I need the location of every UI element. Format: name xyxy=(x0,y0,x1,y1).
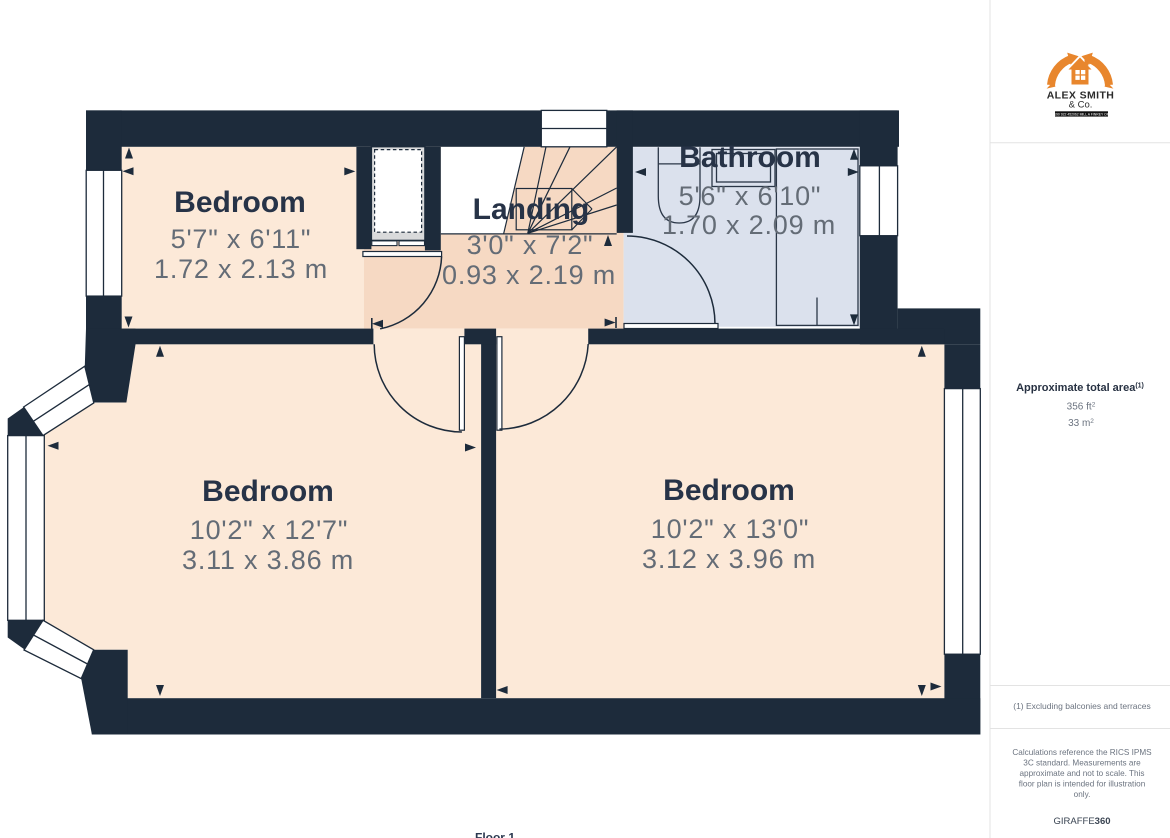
svg-text:3'0" x 7'2": 3'0" x 7'2" xyxy=(467,230,594,260)
svg-text:& Co.: & Co. xyxy=(1069,100,1093,111)
svg-text:floor plan is intended for ill: floor plan is intended for illustration xyxy=(1019,780,1146,789)
svg-text:Bedroom: Bedroom xyxy=(202,475,334,508)
svg-text:1.70 x 2.09 m: 1.70 x 2.09 m xyxy=(662,210,836,240)
svg-text:only.: only. xyxy=(1074,790,1091,799)
svg-text:5'6" x 6'10": 5'6" x 6'10" xyxy=(679,181,822,211)
svg-text:(1) Excluding balconies and te: (1) Excluding balconies and terraces xyxy=(1013,701,1151,711)
svg-text:10'2" x 12'7": 10'2" x 12'7" xyxy=(190,515,348,545)
svg-text:5'7" x 6'11": 5'7" x 6'11" xyxy=(171,224,312,254)
svg-text:10'2" x 13'0": 10'2" x 13'0" xyxy=(651,514,809,544)
svg-text:3.11 x 3.86 m: 3.11 x 3.86 m xyxy=(182,545,354,575)
svg-text:Approximate total area(1): Approximate total area(1) xyxy=(1016,382,1144,394)
svg-text:1.72 x 2.13 m: 1.72 x 2.13 m xyxy=(154,254,328,284)
svg-text:Floor 1: Floor 1 xyxy=(475,831,515,838)
svg-text:0.190 922 452062 MILL A FINREY: 0.190 922 452062 MILL A FINREY ORD xyxy=(1051,113,1112,117)
svg-text:0.93 x 2.19 m: 0.93 x 2.19 m xyxy=(442,260,616,290)
svg-text:Landing: Landing xyxy=(473,193,590,226)
svg-text:approximate and not to scale.: approximate and not to scale. This xyxy=(1019,769,1144,778)
svg-text:Calculations reference the RIC: Calculations reference the RICS IPMS xyxy=(1012,748,1152,757)
svg-text:Bedroom: Bedroom xyxy=(663,474,795,507)
svg-text:3C standard. Measurements are: 3C standard. Measurements are xyxy=(1023,759,1141,768)
svg-text:Bedroom: Bedroom xyxy=(174,186,306,219)
svg-text:Bathroom: Bathroom xyxy=(679,141,821,174)
svg-text:GIRAFFE360: GIRAFFE360 xyxy=(1053,816,1110,827)
svg-text:356 ft2: 356 ft2 xyxy=(1067,402,1096,413)
svg-text:3.12 x 3.96 m: 3.12 x 3.96 m xyxy=(642,544,816,574)
